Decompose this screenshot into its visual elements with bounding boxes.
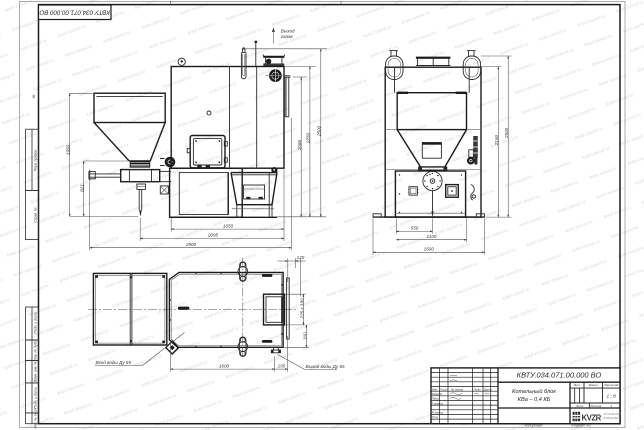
svg-text:Утв.: Утв.	[432, 415, 439, 419]
svg-text:2095: 2095	[207, 233, 219, 238]
svg-text:Вход воды Ду 65: Вход воды Ду 65	[96, 360, 132, 365]
svg-text:Подп. и дата: Подп. и дата	[34, 312, 38, 333]
svg-text:Котельный блок: Котельный блок	[512, 388, 556, 395]
svg-text:Выход воды Ду 65: Выход воды Ду 65	[306, 364, 346, 369]
svg-text:Подп. и дата: Подп. и дата	[34, 387, 38, 408]
svg-text:КОТЕЛЬНЫЙ: КОТЕЛЬНЫЙ	[604, 412, 621, 416]
svg-text:2160: 2160	[494, 134, 499, 146]
svg-text:1600: 1600	[424, 247, 435, 252]
svg-text:1100: 1100	[427, 234, 437, 239]
svg-text:Инв. № подл.: Инв. № подл.	[34, 407, 38, 428]
svg-text:195: 195	[278, 363, 286, 368]
svg-text:Формат А3: Формат А3	[571, 424, 591, 428]
svg-text:2500: 2500	[504, 127, 509, 139]
svg-text:КВТУ 034.071.00.000 ВО: КВТУ 034.071.00.000 ВО	[39, 9, 110, 16]
svg-text:Т.контр.: Т.контр.	[432, 401, 444, 405]
svg-text:Инв. № дубл.: Инв. № дубл.	[34, 340, 38, 361]
svg-text:1950: 1950	[65, 144, 70, 155]
svg-text:Масштаб: Масштаб	[604, 383, 618, 387]
svg-text:Лит.: Лит.	[572, 383, 580, 387]
svg-text:Пров.: Пров.	[432, 397, 440, 401]
svg-text:Листов: Листов	[589, 404, 601, 408]
svg-text:2900: 2900	[185, 242, 197, 247]
svg-text:Н.контр.: Н.контр.	[432, 411, 444, 415]
svg-text:Лист: Лист	[575, 404, 584, 408]
svg-text:Масса: Масса	[589, 383, 598, 387]
svg-text:225 х 190: 225 х 190	[299, 298, 304, 320]
svg-text:Лист: Лист	[439, 387, 448, 391]
svg-text:2086: 2086	[297, 139, 302, 151]
svg-text:2250: 2250	[306, 132, 311, 144]
svg-text:Дата: Дата	[483, 387, 492, 391]
svg-text:KVZR: KVZR	[582, 414, 602, 423]
svg-text:ЗАВОД КВР: ЗАВОД КВР	[604, 416, 619, 420]
svg-text:Разраб.: Разраб.	[432, 392, 443, 396]
svg-text:Копировал: Копировал	[525, 424, 543, 428]
svg-text:№ докум.: № докум.	[451, 387, 464, 391]
svg-text:120: 120	[297, 255, 305, 260]
svg-text:Подп.: Подп.	[474, 387, 482, 391]
svg-text:1 : 8: 1 : 8	[607, 394, 617, 400]
svg-text:1600: 1600	[219, 363, 230, 368]
svg-text:550: 550	[411, 226, 419, 231]
svg-text:Взам. инв. №: Взам. инв. №	[34, 361, 38, 382]
svg-text:КВТУ.034.071.00.000 ВО: КВТУ.034.071.00.000 ВО	[517, 371, 602, 380]
svg-text:Справ. №: Справ. №	[34, 207, 38, 223]
svg-text:96: 96	[32, 95, 36, 99]
svg-text:Изм: Изм	[432, 387, 437, 391]
svg-text:КВа – 0,4 КБ: КВа – 0,4 КБ	[518, 397, 551, 403]
svg-text:Перв. примен.: Перв. примен.	[34, 149, 38, 172]
svg-text:2500: 2500	[317, 125, 322, 137]
svg-text:газов: газов	[281, 34, 293, 39]
svg-text:821: 821	[79, 184, 84, 192]
svg-text:1650: 1650	[223, 223, 234, 228]
svg-text:160: 160	[302, 332, 307, 340]
